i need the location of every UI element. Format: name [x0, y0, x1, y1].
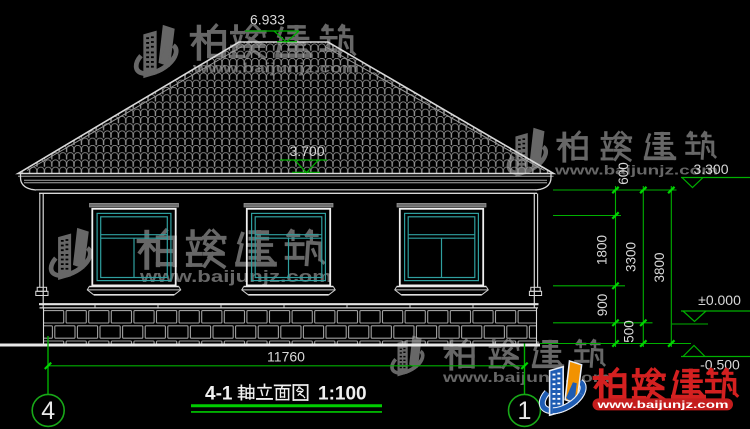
svg-text:3.300: 3.300: [693, 161, 728, 177]
svg-text:3.700: 3.700: [289, 143, 324, 159]
svg-text:500: 500: [622, 320, 637, 343]
svg-text:4: 4: [41, 397, 55, 425]
svg-text:1: 1: [518, 397, 532, 425]
svg-text:-0.500: -0.500: [700, 357, 740, 373]
svg-text:4-1: 4-1: [205, 384, 233, 405]
svg-text:3300: 3300: [624, 242, 639, 272]
svg-text:1:100: 1:100: [318, 384, 367, 405]
svg-text:www.baijunjz.com: www.baijunjz.com: [596, 399, 728, 411]
svg-text:6.933: 6.933: [250, 12, 285, 28]
svg-text:±0.000: ±0.000: [698, 292, 741, 308]
svg-text:11760: 11760: [267, 349, 305, 365]
svg-text:900: 900: [595, 294, 610, 317]
svg-text:1800: 1800: [595, 235, 610, 265]
svg-text:3800: 3800: [652, 252, 667, 282]
svg-text:600: 600: [616, 162, 631, 185]
